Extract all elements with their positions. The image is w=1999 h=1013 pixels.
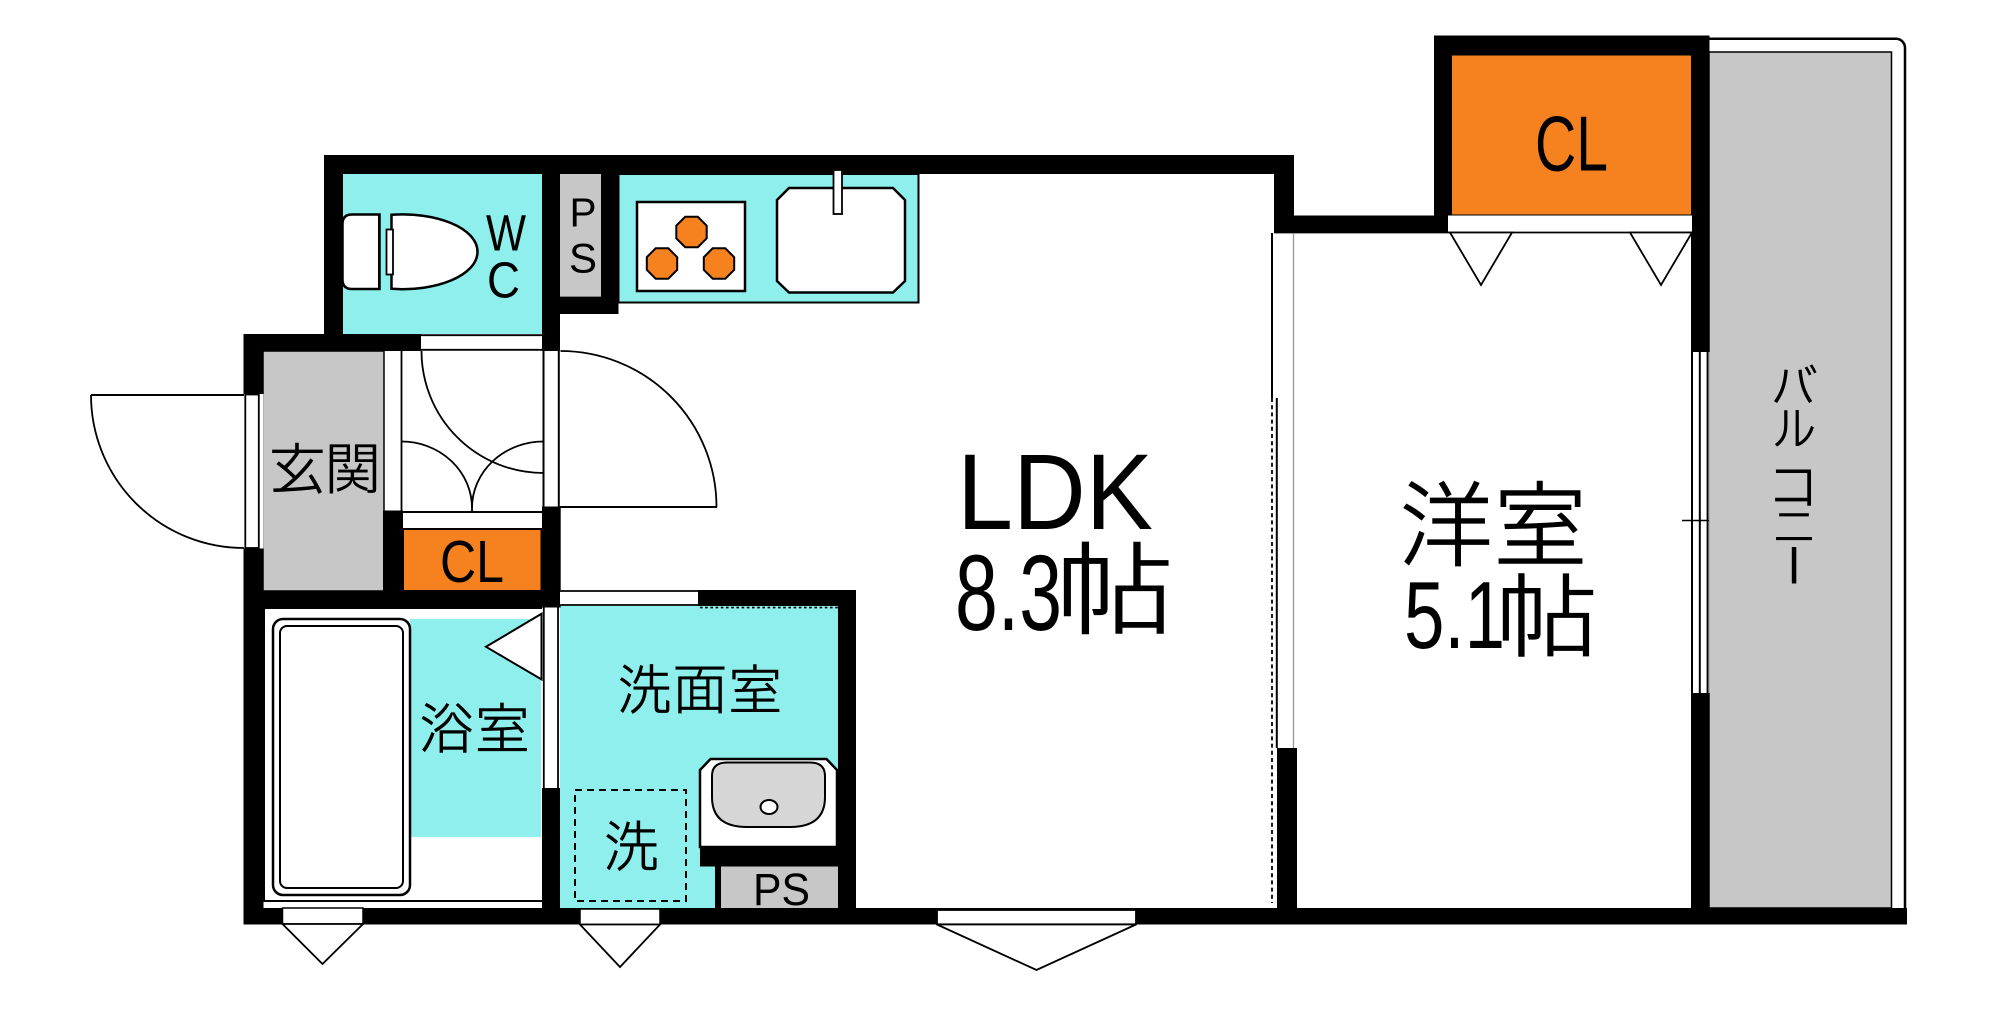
svg-text:5.1: 5.1 xyxy=(1404,562,1505,669)
svg-text:S: S xyxy=(569,235,597,282)
svg-text:CL: CL xyxy=(440,529,504,595)
svg-text:PS: PS xyxy=(753,864,810,915)
svg-text:P: P xyxy=(570,190,597,236)
svg-text:8.3: 8.3 xyxy=(955,532,1062,653)
svg-text:CL: CL xyxy=(1535,99,1608,187)
svg-text:C: C xyxy=(487,252,520,309)
